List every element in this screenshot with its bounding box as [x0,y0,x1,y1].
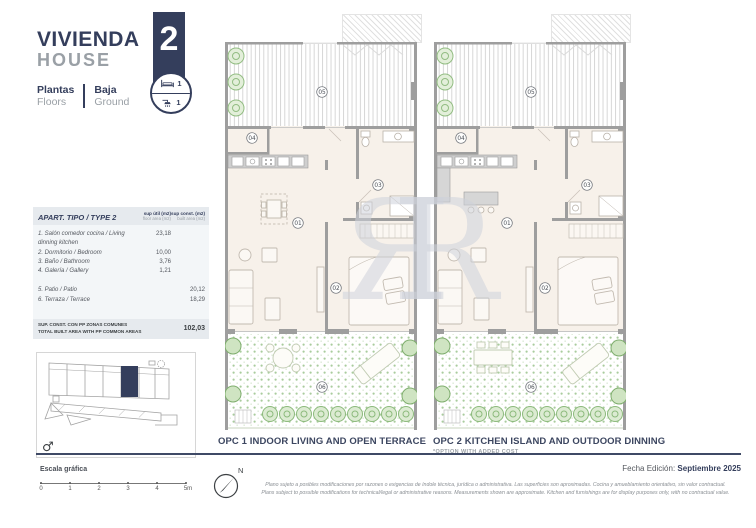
col-header-floor-area: sup útil (m2) floor area (m2) [137,211,171,221]
page-title-es: VIVIENDA [37,28,139,52]
shower-icon [161,98,174,108]
site-plan-drawing [37,353,193,453]
table-row: 6. Terraza / Terrace 18,29 [38,296,205,305]
scale-label: Escala gráfica [40,466,87,473]
svg-text:05: 05 [318,90,326,96]
floors-divider [83,84,85,108]
scale-tick: 4 [155,486,158,492]
svg-text:06: 06 [527,385,535,391]
kitchen-counter [228,155,308,168]
scale-tick: 0 [39,486,42,492]
scale-tick: 5m [184,486,192,492]
scale-tick: 1 [68,486,71,492]
room-label-patio: 05 [526,87,537,98]
rooms-badge: 1 1 [150,72,192,114]
room-label-terrace: 06 [526,382,537,393]
svg-text:02: 02 [541,286,549,292]
floor-plan-sheet: VIVIENDA HOUSE Plantas Floors Baja Groun… [0,0,756,528]
svg-text:03: 03 [374,183,382,189]
room-label-bedroom: 02 [540,283,551,294]
room-label-patio: 05 [317,87,328,98]
table-row: 1. Salón comedor cocina / Living dinning… [38,230,205,249]
bedrooms-count: 1 [177,79,181,88]
table-total-row: SUP. CONST. CON PP ZONAS COMUNES TOTAL B… [33,319,209,339]
room-label-living: 01 [293,218,304,229]
svg-text:04: 04 [457,136,465,142]
table-row: 3. Baño / Bathroom 3,76 [38,258,205,267]
area-table-title: APART. TIPO / TYPE 2 [38,211,137,222]
terrace-plants [472,407,623,422]
col-header-built-area: sup const. (m2) built area (m2) [171,211,205,221]
terrace-plants [263,407,414,422]
total-value: 102,03 [171,325,205,332]
floor-plan-opc1: 05 04 03 01 02 06 [225,42,417,432]
north-label: N [238,466,243,475]
table-row: 2. Dormitorio / Bedroom 10,00 [38,249,205,258]
total-label-es: SUP. CONST. CON PP ZONAS COMUNES [38,322,171,329]
room-label-bathroom: 03 [582,180,593,191]
room-label-gallery: 04 [247,133,258,144]
plan1-caption: OPC 1 INDOOR LIVING AND OPEN TERRACE [218,436,426,447]
wardrobe [360,224,414,238]
svg-text:02: 02 [332,286,340,292]
patio-plants [228,48,244,116]
bed [349,257,409,325]
room-label-living: 01 [502,218,513,229]
svg-text:05: 05 [527,90,535,96]
page-title-en: HOUSE [37,50,111,71]
floors-block: Plantas Floors Baja Ground [37,84,129,108]
scale-tick: 3 [126,486,129,492]
svg-text:03: 03 [583,183,591,189]
kitchen-counter [437,155,517,168]
legal-disclaimer: Plano sujeto a posibles modificaciones p… [250,481,741,498]
floors-label-en: Floors [37,96,74,108]
floor-value-en: Ground [94,96,129,108]
svg-text:06: 06 [318,385,326,391]
room-label-gallery: 04 [456,133,467,144]
total-label-en: TOTAL BUILT AREA WITH PP COMMON AREAS [38,329,171,336]
patio-plants [437,48,453,116]
highlighted-unit [121,366,138,397]
floor-plan-opc2: 05 04 03 01 02 06 [434,42,626,432]
table-row: 4. Galería / Gallery 1,21 [38,267,205,276]
svg-text:01: 01 [294,221,302,227]
patio-floor [437,44,623,126]
svg-text:04: 04 [248,136,256,142]
table-row: 5. Patio / Patio 20,12 [38,286,205,295]
room-label-bedroom: 02 [331,283,342,294]
bed [558,257,618,325]
area-table: APART. TIPO / TYPE 2 sup útil (m2) floor… [33,207,209,339]
patio-floor [228,44,414,126]
scale-tick: 2 [97,486,100,492]
floors-label-es: Plantas [37,84,74,96]
roof-hatch [342,14,422,43]
terrace-steps [444,410,460,423]
terrace-steps [235,410,251,423]
terrace-dining-table [474,342,512,373]
svg-text:01: 01 [503,221,511,227]
bed-icon [160,79,175,88]
footer-divider [36,453,741,455]
roof-hatch [551,14,631,43]
edition-date: Fecha Edición: Septiembre 2025 [622,464,741,473]
room-label-bathroom: 03 [373,180,384,191]
wardrobe [569,224,623,238]
floor-value-es: Baja [94,84,129,96]
room-label-terrace: 06 [317,382,328,393]
scale-bar: 0 1 2 3 4 5m [40,477,190,495]
site-plan: ♂ [36,352,196,458]
bathrooms-count: 1 [176,98,180,107]
